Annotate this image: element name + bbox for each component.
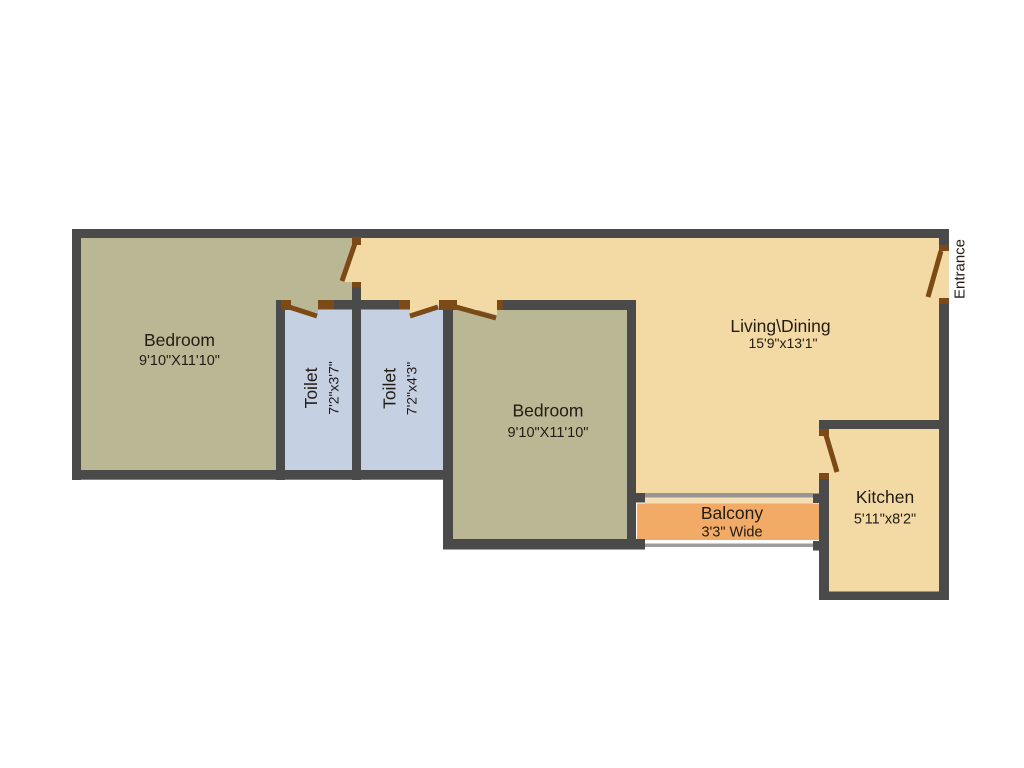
svg-text:Bedroom: Bedroom xyxy=(144,330,215,350)
svg-text:Bedroom: Bedroom xyxy=(512,401,583,421)
svg-text:Kitchen: Kitchen xyxy=(856,487,914,507)
svg-text:9'10"X11'10": 9'10"X11'10" xyxy=(139,353,220,369)
svg-text:15'9"x13'1": 15'9"x13'1" xyxy=(748,335,817,351)
svg-text:3'3" Wide: 3'3" Wide xyxy=(701,525,762,541)
svg-text:5'11"x8'2": 5'11"x8'2" xyxy=(854,512,916,528)
svg-text:Living\Dining: Living\Dining xyxy=(730,316,830,336)
svg-text:Toilet: Toilet xyxy=(301,367,321,408)
svg-text:Balcony: Balcony xyxy=(701,503,764,523)
svg-text:Toilet: Toilet xyxy=(380,368,400,409)
svg-text:9'10"X11'10": 9'10"X11'10" xyxy=(508,425,589,441)
svg-text:Entrance: Entrance xyxy=(952,239,969,299)
svg-text:7'2"x4'3": 7'2"x4'3" xyxy=(404,362,420,415)
svg-text:7'2"x3'7": 7'2"x3'7" xyxy=(325,361,341,414)
